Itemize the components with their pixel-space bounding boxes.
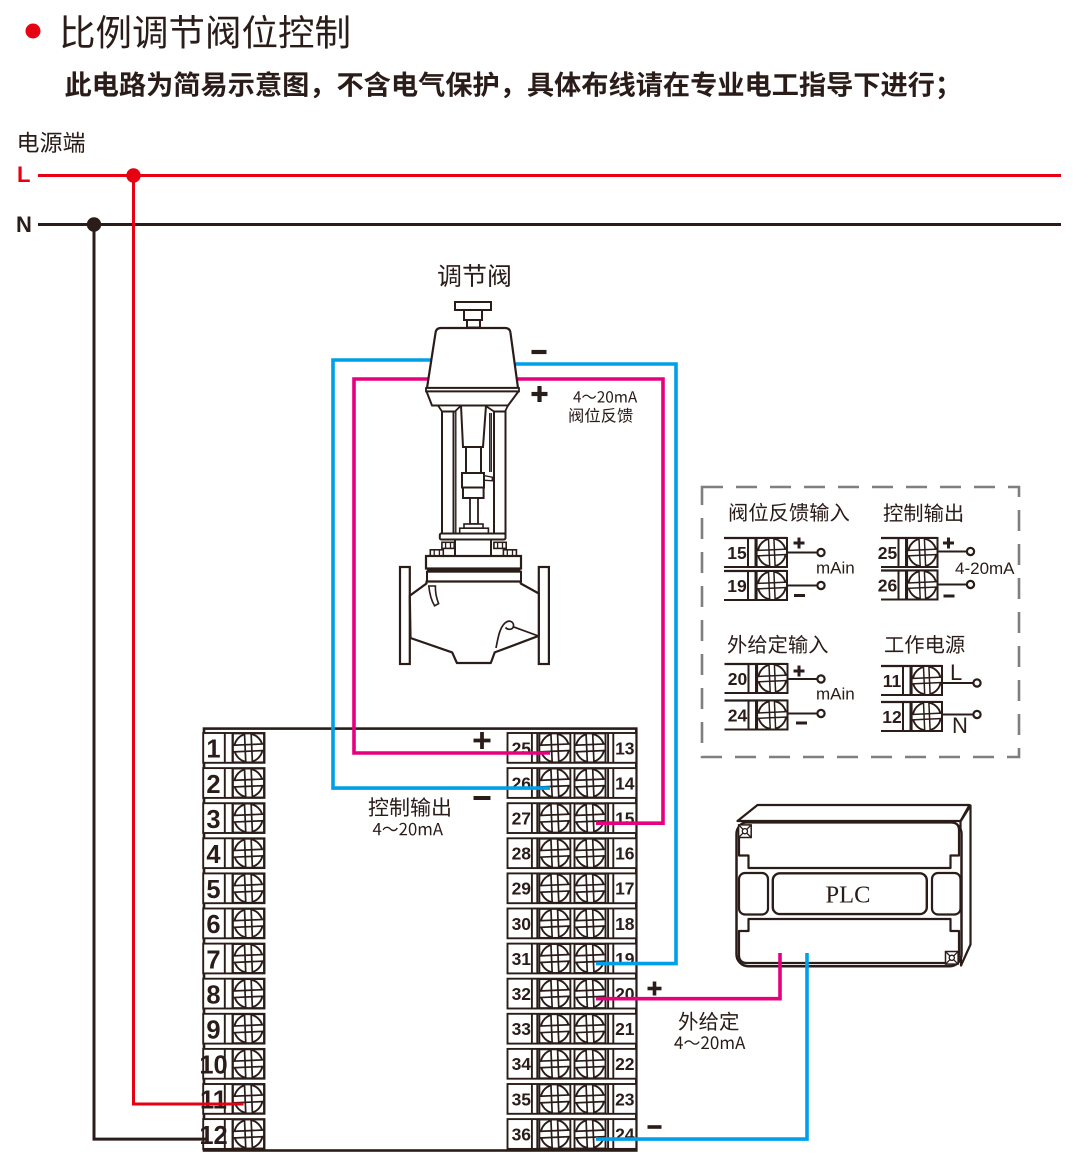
svg-text:30: 30: [512, 914, 532, 934]
svg-text:11: 11: [200, 1087, 227, 1115]
svg-text:19: 19: [615, 949, 635, 969]
svg-text:23: 23: [615, 1089, 635, 1109]
svg-text:8: 8: [206, 981, 220, 1009]
svg-text:L: L: [950, 660, 962, 685]
svg-text:27: 27: [512, 809, 531, 829]
svg-text:21: 21: [615, 1019, 635, 1039]
svg-text:16: 16: [615, 844, 635, 864]
svg-text:35: 35: [512, 1089, 532, 1109]
svg-text:29: 29: [512, 879, 532, 899]
svg-text:2: 2: [206, 771, 220, 799]
svg-text:4: 4: [206, 841, 221, 869]
svg-text:28: 28: [512, 844, 532, 864]
svg-text:18: 18: [615, 914, 635, 934]
svg-text:24: 24: [615, 1124, 635, 1144]
svg-text:1: 1: [206, 736, 220, 764]
svg-text:PLC: PLC: [826, 882, 871, 909]
svg-text:33: 33: [512, 1019, 532, 1039]
svg-text:6: 6: [206, 911, 220, 939]
svg-text:11: 11: [883, 671, 902, 691]
svg-text:mAin: mAin: [816, 685, 855, 704]
svg-text:5: 5: [206, 876, 220, 904]
svg-text:20: 20: [728, 669, 748, 689]
svg-text:20: 20: [615, 984, 635, 1004]
svg-text:25: 25: [878, 543, 898, 563]
svg-text:15: 15: [727, 543, 747, 563]
svg-text:12: 12: [199, 1122, 227, 1150]
svg-text:12: 12: [882, 707, 902, 727]
svg-text:3: 3: [206, 806, 220, 834]
svg-text:10: 10: [199, 1052, 227, 1080]
svg-text:25: 25: [512, 738, 532, 758]
svg-text:36: 36: [512, 1124, 532, 1144]
svg-text:15: 15: [615, 809, 635, 829]
svg-text:N: N: [952, 713, 968, 738]
svg-text:L: L: [17, 162, 30, 187]
svg-text:4-20mA: 4-20mA: [955, 559, 1015, 578]
svg-text:mAin: mAin: [816, 559, 855, 578]
svg-text:13: 13: [615, 738, 635, 758]
svg-text:22: 22: [615, 1054, 635, 1074]
svg-text:32: 32: [512, 984, 532, 1004]
svg-text:26: 26: [878, 575, 898, 595]
svg-text:24: 24: [728, 705, 748, 725]
svg-text:9: 9: [206, 1017, 220, 1045]
svg-text:31: 31: [512, 949, 532, 969]
svg-text:17: 17: [615, 879, 634, 899]
svg-text:19: 19: [727, 576, 747, 596]
svg-text:34: 34: [512, 1054, 532, 1074]
svg-text:7: 7: [206, 946, 220, 974]
svg-text:14: 14: [615, 773, 635, 793]
svg-text:26: 26: [512, 773, 532, 793]
svg-text:N: N: [16, 212, 32, 237]
